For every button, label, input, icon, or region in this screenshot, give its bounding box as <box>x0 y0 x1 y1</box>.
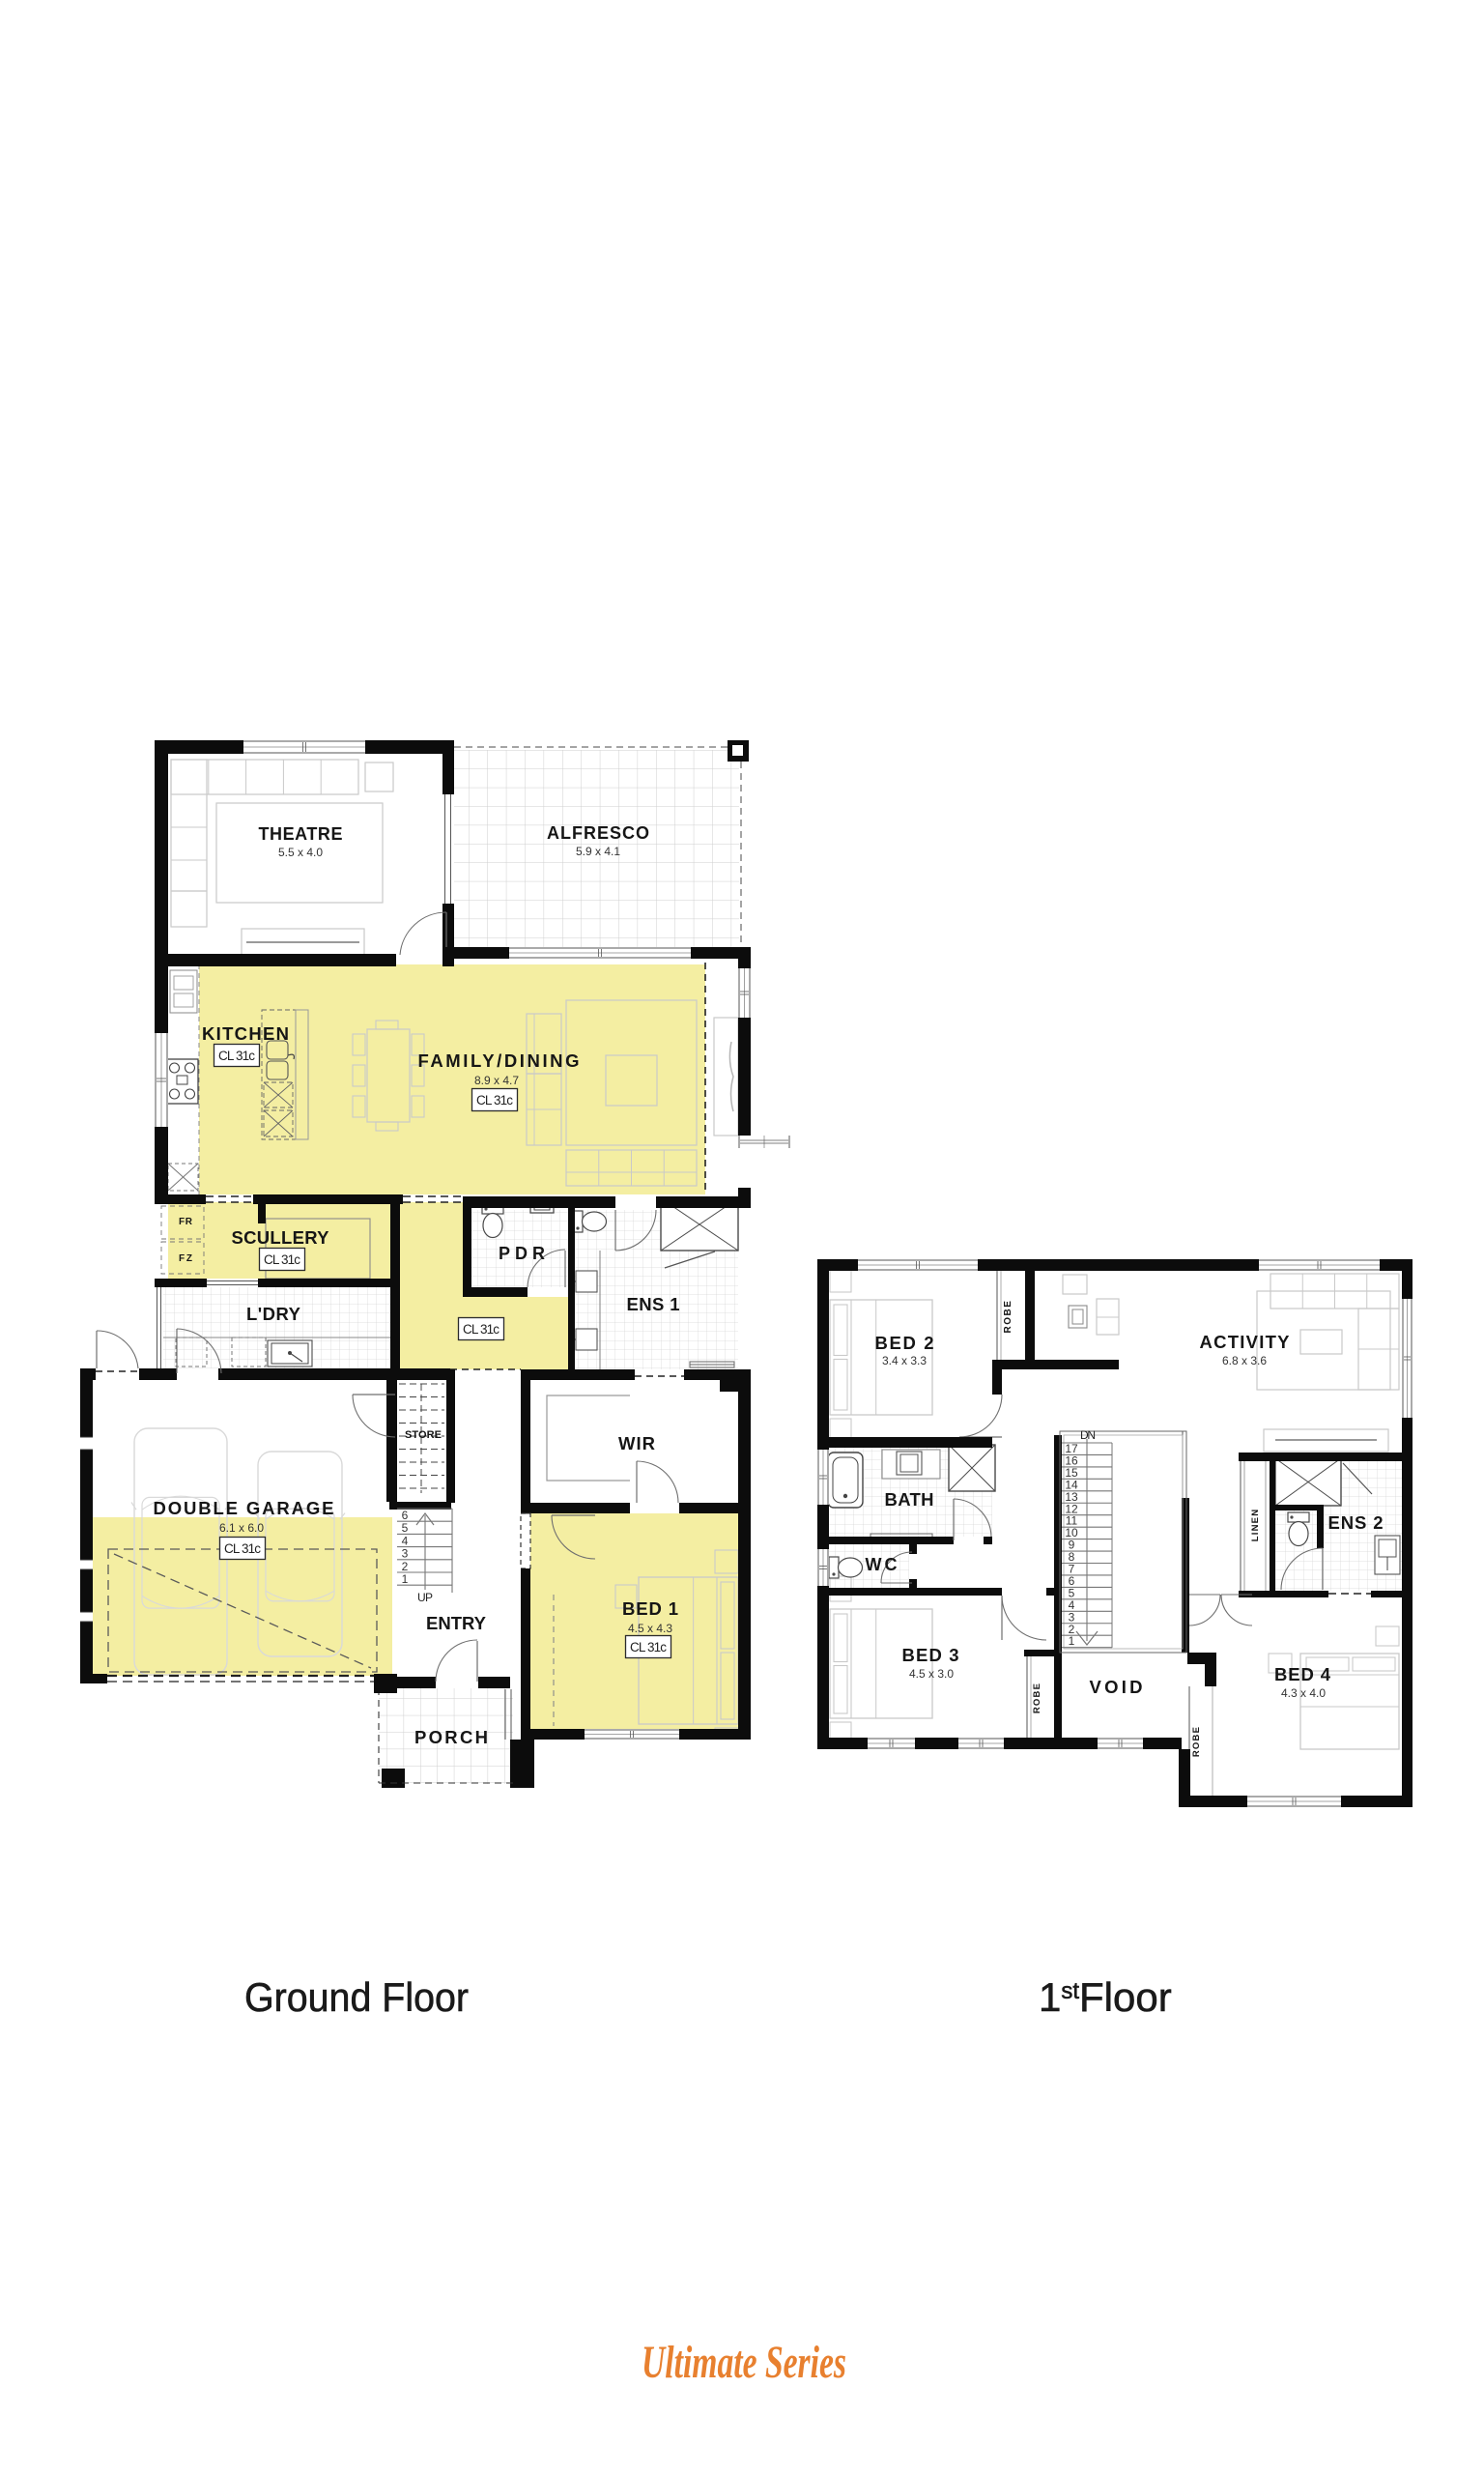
svg-text:VOID: VOID <box>1090 1677 1143 1697</box>
svg-text:CL 31c: CL 31c <box>264 1252 300 1267</box>
svg-text:4: 4 <box>402 1534 409 1547</box>
svg-text:UP: UP <box>417 1591 433 1604</box>
svg-text:LINEN: LINEN <box>1250 1509 1261 1542</box>
svg-text:L'DRY: L'DRY <box>246 1304 301 1324</box>
svg-text:CL 31c: CL 31c <box>630 1640 667 1654</box>
svg-text:1stFloor: 1stFloor <box>1039 1974 1172 2020</box>
svg-text:BED 1: BED 1 <box>622 1598 678 1619</box>
svg-text:CL 31c: CL 31c <box>476 1093 513 1108</box>
svg-text:2: 2 <box>402 1560 409 1573</box>
svg-text:ENS 2: ENS 2 <box>1328 1512 1384 1533</box>
svg-text:PORCH: PORCH <box>414 1727 488 1747</box>
svg-text:8.9 x 4.7: 8.9 x 4.7 <box>474 1074 519 1087</box>
svg-text:FR: FR <box>179 1217 193 1227</box>
svg-text:Ground Floor: Ground Floor <box>244 1974 469 2020</box>
svg-text:DOUBLE GARAGE: DOUBLE GARAGE <box>154 1498 334 1518</box>
svg-text:5.9 x 4.1: 5.9 x 4.1 <box>576 845 620 858</box>
svg-text:SCULLERY: SCULLERY <box>232 1227 330 1248</box>
svg-text:FAMILY/DINING: FAMILY/DINING <box>418 1050 580 1071</box>
svg-text:6.8 x 3.6: 6.8 x 3.6 <box>1222 1354 1267 1367</box>
svg-text:3: 3 <box>402 1547 409 1561</box>
svg-text:BATH: BATH <box>885 1489 934 1510</box>
svg-text:WIR: WIR <box>618 1433 655 1453</box>
svg-text:1: 1 <box>1069 1634 1075 1648</box>
svg-text:BED 4: BED 4 <box>1274 1664 1331 1684</box>
svg-text:ENTRY: ENTRY <box>426 1613 487 1633</box>
svg-text:CL 31c: CL 31c <box>463 1322 499 1337</box>
svg-text:FZ: FZ <box>179 1253 192 1264</box>
svg-text:STORE: STORE <box>405 1429 442 1441</box>
svg-text:THEATRE: THEATRE <box>259 824 343 844</box>
svg-text:3.4 x 3.3: 3.4 x 3.3 <box>882 1354 927 1367</box>
svg-text:PDR: PDR <box>499 1244 545 1263</box>
svg-text:DN: DN <box>1080 1428 1096 1442</box>
svg-text:4.5 x 3.0: 4.5 x 3.0 <box>909 1667 954 1681</box>
svg-text:5.5 x 4.0: 5.5 x 4.0 <box>278 846 323 859</box>
svg-text:CL 31c: CL 31c <box>224 1541 261 1556</box>
svg-text:ROBE: ROBE <box>1003 1300 1013 1334</box>
svg-text:6.1 x 6.0: 6.1 x 6.0 <box>219 1521 264 1535</box>
svg-text:ENS 1: ENS 1 <box>627 1294 680 1314</box>
svg-text:6: 6 <box>402 1509 409 1522</box>
svg-text:WC: WC <box>866 1555 898 1574</box>
svg-text:ROBE: ROBE <box>1191 1726 1202 1757</box>
svg-text:Ultimate Series: Ultimate Series <box>642 2337 846 2388</box>
svg-text:BED 3: BED 3 <box>902 1645 959 1665</box>
svg-text:5: 5 <box>402 1521 409 1535</box>
svg-text:1: 1 <box>402 1572 409 1586</box>
svg-text:ROBE: ROBE <box>1032 1683 1042 1713</box>
svg-text:4.3 x 4.0: 4.3 x 4.0 <box>1281 1686 1326 1700</box>
svg-text:BED 2: BED 2 <box>875 1333 934 1353</box>
svg-text:ALFRESCO: ALFRESCO <box>547 823 649 843</box>
svg-text:4.5 x 4.3: 4.5 x 4.3 <box>628 1622 672 1635</box>
svg-text:CL 31c: CL 31c <box>218 1049 255 1063</box>
